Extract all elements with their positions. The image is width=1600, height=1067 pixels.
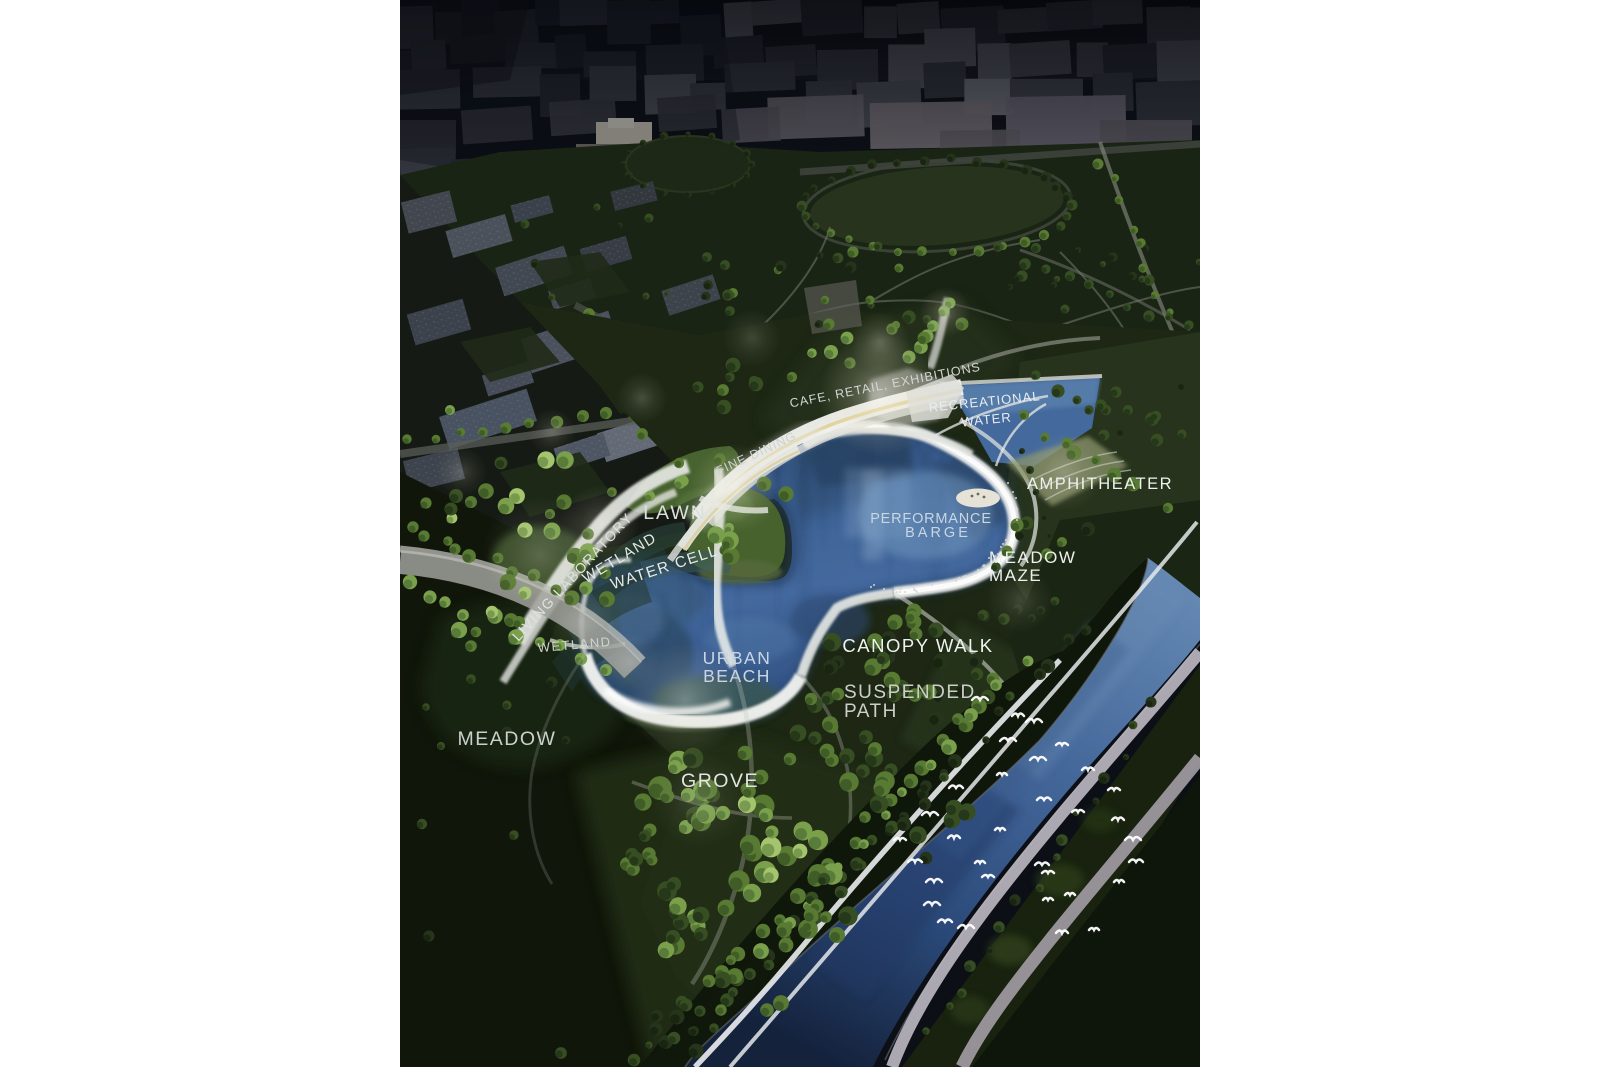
svg-text:MEADOW: MEADOW [989,548,1076,567]
svg-text:LAWN: LAWN [643,502,707,524]
svg-text:BEACH: BEACH [703,666,771,686]
svg-text:AMPHITHEATER: AMPHITHEATER [1027,475,1173,493]
svg-text:CANOPY WALK: CANOPY WALK [842,635,993,656]
svg-text:BARGE: BARGE [905,525,971,541]
svg-text:MEADOW: MEADOW [458,728,557,750]
svg-text:PATH: PATH [844,701,898,722]
svg-text:GROVE: GROVE [681,770,759,792]
svg-text:SUSPENDED: SUSPENDED [844,682,976,703]
svg-text:MAZE: MAZE [989,566,1042,585]
svg-text:URBAN: URBAN [703,648,772,668]
